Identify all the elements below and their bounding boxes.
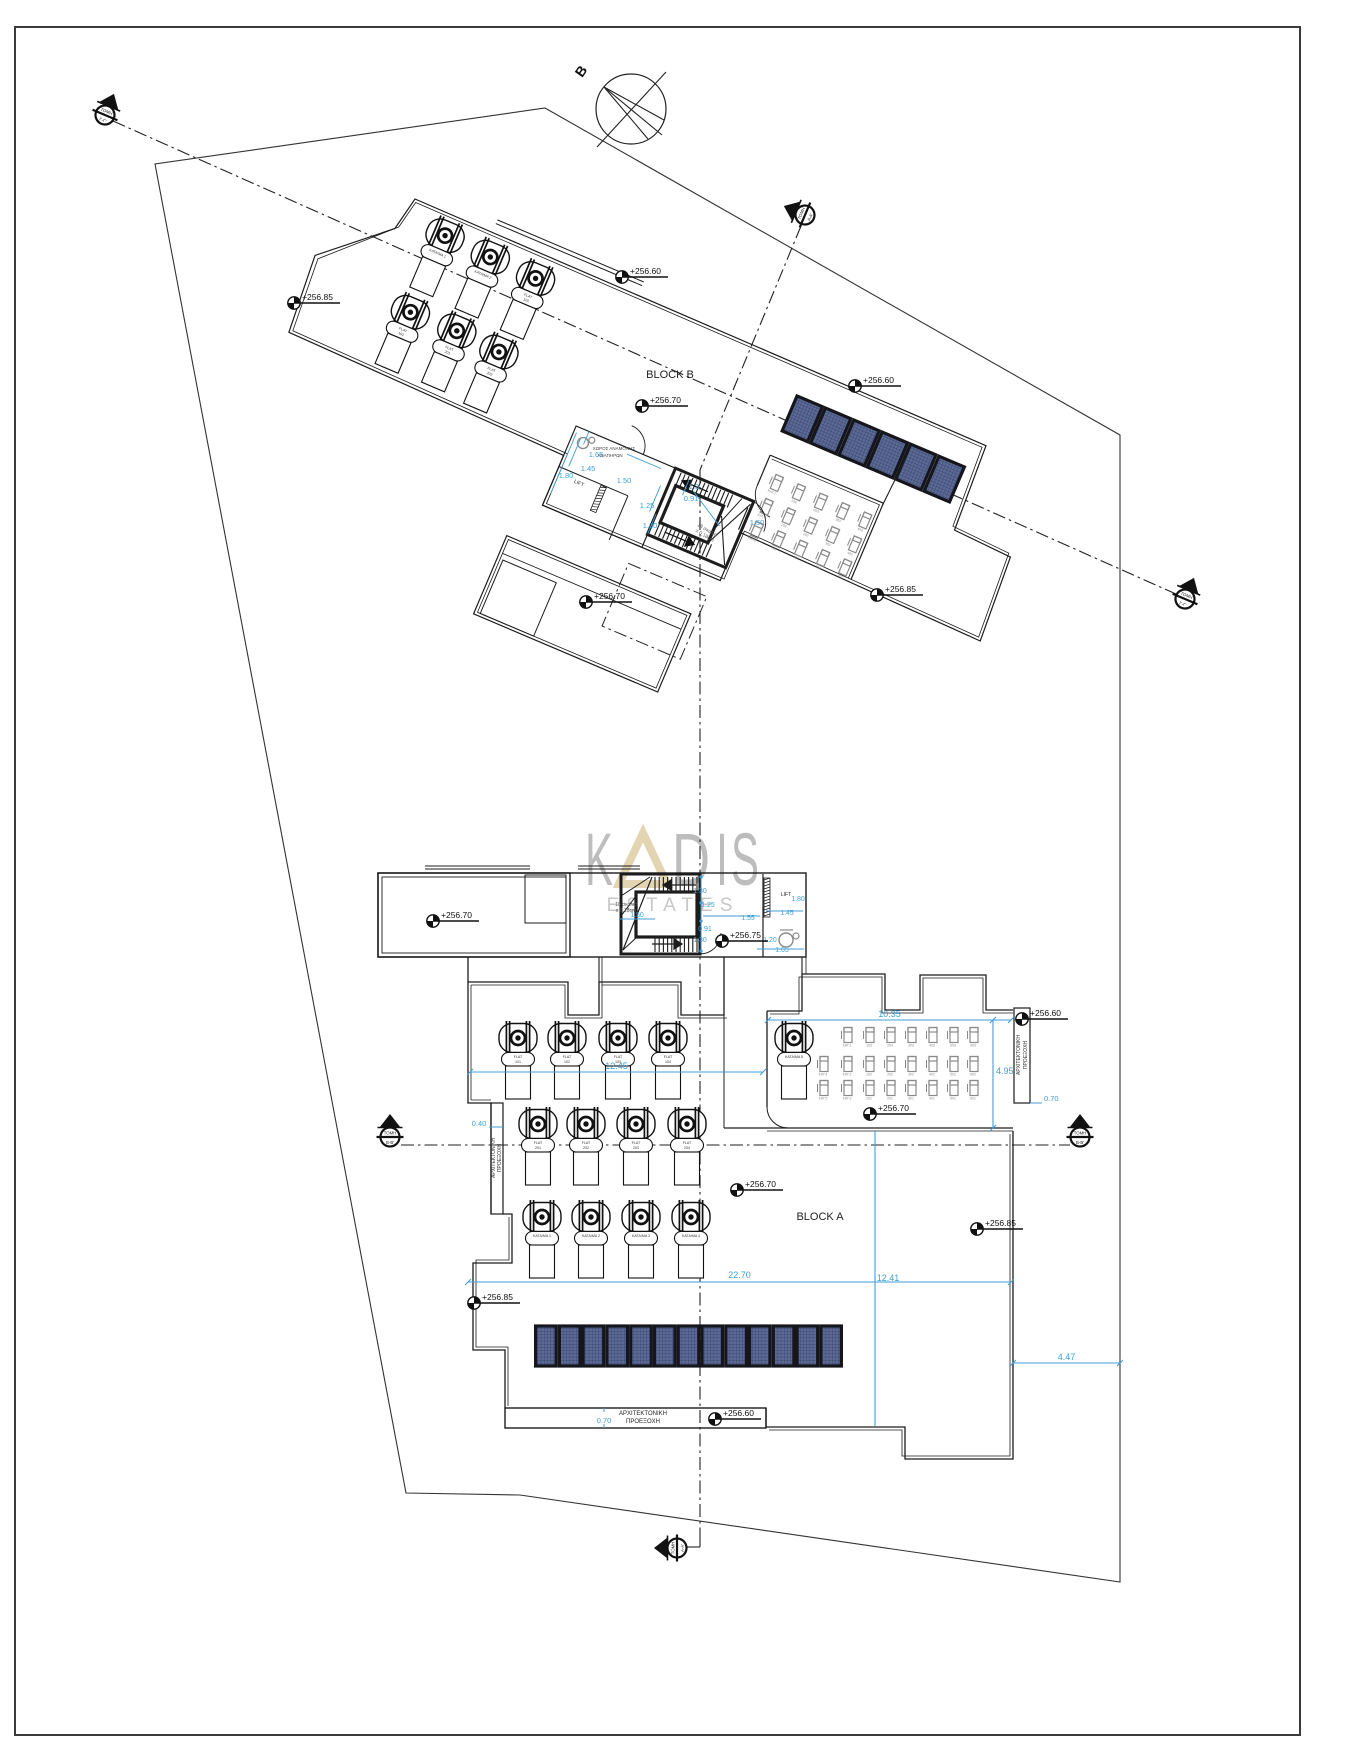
svg-text:+256.70: +256.70 [594,591,625,601]
svg-text:103: 103 [866,1044,872,1048]
svg-text:x 0.18cm: x 0.18cm [616,908,636,914]
svg-text:204: 204 [684,1146,690,1150]
svg-text:1.25: 1.25 [701,902,715,909]
svg-text:401: 401 [929,1097,935,1101]
svg-text:ΚΑΤ.4: ΚΑΤ.4 [819,1073,828,1077]
svg-text:ΧΩΡΟΣ ΑΝΑΜΟΝΗΣ: ΧΩΡΟΣ ΑΝΑΜΟΝΗΣ [593,446,636,451]
svg-text:FLAT: FLAT [582,1141,591,1145]
svg-text:ΤΟΜΗ: ΤΟΜΗ [1074,1131,1087,1136]
svg-text:1.65: 1.65 [775,947,789,954]
svg-text:1.25: 1.25 [640,501,655,510]
svg-text:0.70: 0.70 [1044,1094,1059,1103]
svg-text:ΑΝΑΠΗΡΩΝ: ΑΝΑΠΗΡΩΝ [597,453,622,458]
svg-text:1.45: 1.45 [581,464,596,473]
svg-text:ΠΡΟΕΞΟΧΗ: ΠΡΟΕΞΟΧΗ [626,1419,660,1425]
svg-text:I: I [716,818,728,901]
svg-text:ΠΡΟΕΞΟΧΗ: ΠΡΟΕΞΟΧΗ [497,1143,503,1172]
svg-text:1.30: 1.30 [693,888,707,895]
svg-text:FLAT: FLAT [534,1141,543,1145]
svg-text:1.55: 1.55 [741,915,755,922]
svg-text:+256.60: +256.60 [723,1408,754,1418]
svg-text:ΚΑΤ.2: ΚΑΤ.2 [843,1073,852,1077]
svg-text:ΚΑΤ.1: ΚΑΤ.1 [843,1044,852,1048]
svg-text:201: 201 [887,1097,893,1101]
svg-text:BLOCK B: BLOCK B [646,369,694,381]
svg-text:+256.85: +256.85 [302,292,333,302]
svg-text:FLAT: FLAT [514,1055,523,1059]
svg-text:+256.60: +256.60 [863,375,894,385]
svg-text:LIFT: LIFT [781,892,791,898]
svg-text:601: 601 [970,1097,976,1101]
svg-text:1.45: 1.45 [780,910,794,917]
svg-text:+256.75: +256.75 [730,930,761,940]
svg-text:1.50: 1.50 [750,518,765,527]
svg-text:FLAT: FLAT [614,1055,623,1059]
svg-text:302: 302 [908,1073,914,1077]
svg-text:1.80: 1.80 [791,896,805,903]
svg-text:0.70: 0.70 [597,1416,612,1425]
svg-text:+256.70: +256.70 [441,910,472,920]
svg-text:402: 402 [929,1073,935,1077]
svg-text:1.80: 1.80 [559,471,574,480]
svg-text:10.35: 10.35 [878,1009,901,1019]
svg-text:0.40: 0.40 [472,1119,487,1128]
svg-text:Α-Α': Α-Α' [680,1544,685,1552]
svg-text:12.45: 12.45 [605,1061,628,1071]
svg-text:+256.70: +256.70 [650,395,681,405]
svg-text:102: 102 [564,1060,570,1064]
svg-text:0.91: 0.91 [698,926,712,933]
svg-text:12.41: 12.41 [877,1273,900,1283]
svg-text:FLAT: FLAT [632,1141,641,1145]
svg-text:ΚΑΤΑ/ΜΑ 1: ΚΑΤΑ/ΜΑ 1 [533,1234,551,1238]
svg-text:101: 101 [515,1060,521,1064]
svg-text:18 σκαλιά: 18 σκαλιά [615,901,637,908]
svg-text:1.3: 1.3 [689,482,699,491]
svg-text:501: 501 [950,1097,956,1101]
svg-text:502: 502 [950,1073,956,1077]
svg-text:1.50: 1.50 [617,476,632,485]
svg-text:ΚΑΤΑ/ΜΑ 5: ΚΑΤΑ/ΜΑ 5 [785,1055,803,1059]
svg-text:0.91: 0.91 [684,494,699,503]
svg-text:301: 301 [908,1097,914,1101]
svg-text:ΚΑΤΑ/ΜΑ 4: ΚΑΤΑ/ΜΑ 4 [682,1234,700,1238]
svg-text:203: 203 [887,1044,893,1048]
svg-text:K: K [585,818,613,901]
svg-text:202: 202 [583,1146,589,1150]
svg-text:Β-Β': Β-Β' [386,1140,394,1145]
svg-text:22.70: 22.70 [728,1270,751,1280]
svg-text:ΤΟΜΗ: ΤΟΜΗ [671,1542,676,1555]
svg-text:202: 202 [887,1073,893,1077]
svg-text:ΑΡΧΙΤΕΚΤΟΝΙΚΗ: ΑΡΧΙΤΕΚΤΟΝΙΚΗ [619,1411,667,1417]
svg-text:+256.85: +256.85 [482,1292,513,1302]
svg-text:104: 104 [665,1060,671,1064]
svg-text:+256.60: +256.60 [630,266,661,276]
svg-text:ΤΟΜΗ: ΤΟΜΗ [384,1131,397,1136]
svg-text:S: S [731,818,759,901]
svg-text:+256.85: +256.85 [985,1218,1016,1228]
svg-text:403: 403 [929,1044,935,1048]
svg-text:+256.85: +256.85 [885,584,916,594]
svg-text:4.95: 4.95 [996,1066,1014,1076]
svg-text:ΚΑΤΑ/ΜΑ 3: ΚΑΤΑ/ΜΑ 3 [632,1234,650,1238]
svg-text:BLOCK A: BLOCK A [796,1211,844,1223]
svg-text:+256.60: +256.60 [1030,1008,1061,1018]
svg-text:303: 303 [908,1044,914,1048]
svg-text:ΠΡΟΕΞΟΧΗ: ΠΡΟΕΞΟΧΗ [1023,1040,1029,1069]
svg-text:ΚΑΤ.5: ΚΑΤ.5 [819,1097,828,1101]
svg-text:1.30: 1.30 [693,937,707,944]
svg-text:203: 203 [633,1146,639,1150]
svg-text:503: 503 [950,1044,956,1048]
svg-text:1.30: 1.30 [643,521,658,530]
svg-text:Β-Β': Β-Β' [1076,1140,1084,1145]
svg-text:FLAT: FLAT [563,1055,572,1059]
svg-text:4.47: 4.47 [1058,1352,1076,1362]
svg-text:FLAT: FLAT [664,1055,673,1059]
svg-text:+256.70: +256.70 [745,1179,776,1189]
svg-text:102: 102 [866,1073,872,1077]
svg-text:603: 603 [970,1044,976,1048]
svg-text:+256.70: +256.70 [878,1103,909,1113]
svg-text:ΑΡΧΙΤΕΚΤΟΝΙΚΗ: ΑΡΧΙΤΕΚΤΟΝΙΚΗ [1016,1035,1022,1075]
svg-text:ΚΑΤ.3: ΚΑΤ.3 [843,1097,852,1101]
svg-text:ΚΑΤΑ/ΜΑ 2: ΚΑΤΑ/ΜΑ 2 [582,1234,600,1238]
svg-text:201: 201 [535,1146,541,1150]
svg-text:FLAT: FLAT [683,1141,692,1145]
svg-text:602: 602 [970,1073,976,1077]
svg-text:101: 101 [866,1097,872,1101]
